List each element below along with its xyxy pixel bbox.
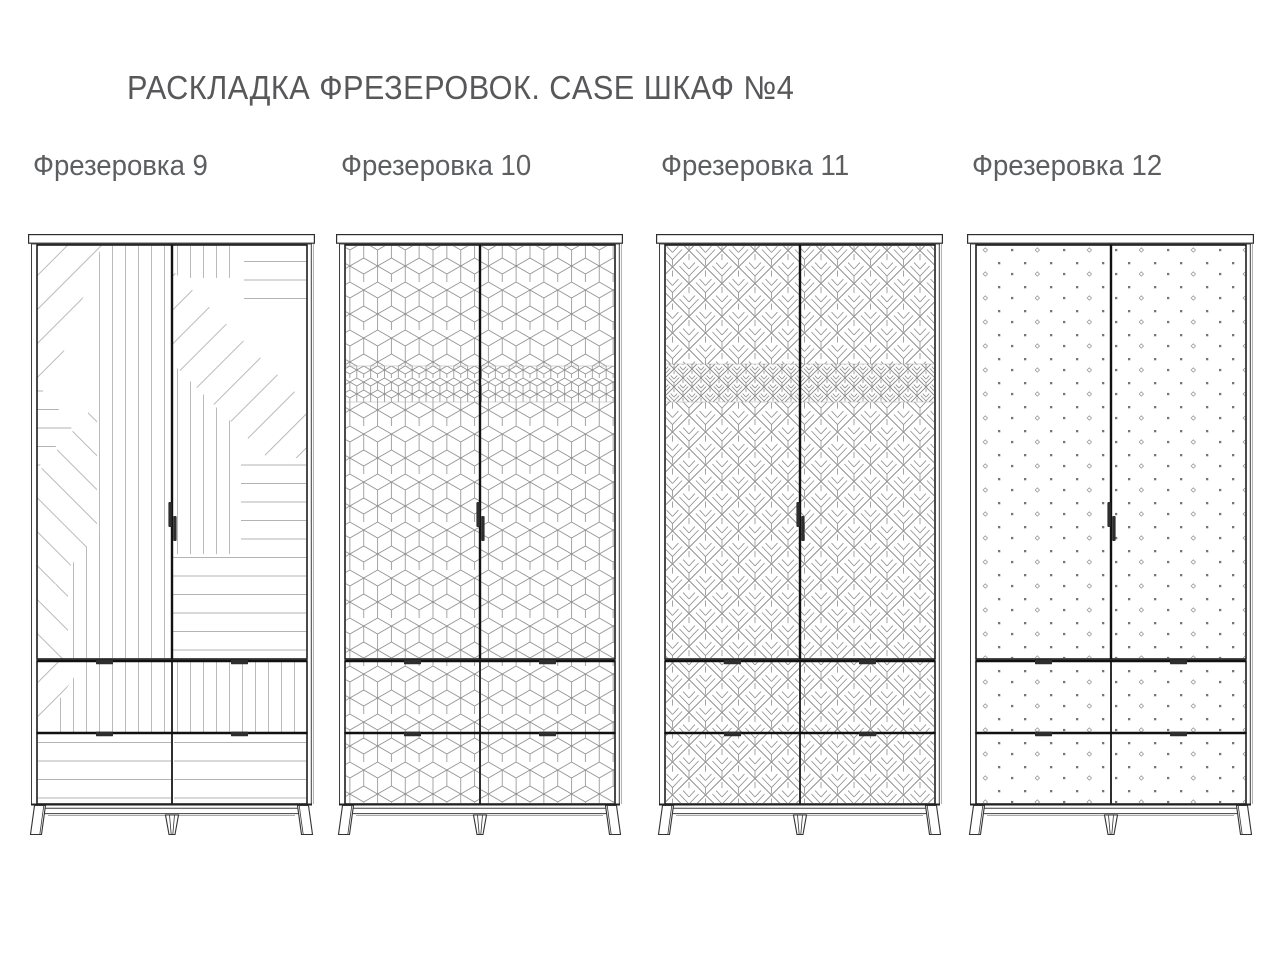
wardrobe-svg <box>967 234 1254 836</box>
wardrobe-drawing <box>967 234 1254 836</box>
top-cap <box>29 235 315 245</box>
center-leg <box>1105 815 1118 835</box>
wardrobe-block-3: Фрезеровка 11 <box>656 150 948 860</box>
wardrobe-drawing <box>656 234 943 836</box>
wardrobe-label: Фрезеровка 12 <box>972 150 1162 183</box>
wardrobe-block-1: Фрезеровка 9 <box>28 150 320 860</box>
top-cap <box>657 235 943 245</box>
wardrobe-drawing <box>28 234 315 836</box>
wardrobe-svg <box>336 234 623 836</box>
wardrobe-label: Фрезеровка 11 <box>661 150 849 183</box>
wardrobe-drawing <box>336 234 623 836</box>
top-cap <box>968 235 1254 245</box>
right-leg <box>926 806 941 835</box>
drawing-sheet: РАСКЛАДКА ФРЕЗЕРОВОК. CASE ШКАФ №4 Фрезе… <box>0 0 1281 960</box>
wardrobe-svg <box>28 234 315 836</box>
left-leg <box>31 806 46 835</box>
top-cap <box>337 235 623 245</box>
right-leg <box>298 806 313 835</box>
center-leg <box>794 815 807 835</box>
wardrobe-label: Фрезеровка 10 <box>341 150 531 183</box>
wardrobe-block-2: Фрезеровка 10 <box>336 150 628 860</box>
page-title: РАСКЛАДКА ФРЕЗЕРОВОК. CASE ШКАФ №4 <box>127 69 794 107</box>
left-leg <box>970 806 985 835</box>
wardrobe-block-4: Фрезеровка 12 <box>967 150 1259 860</box>
wardrobe-label: Фрезеровка 9 <box>33 150 208 183</box>
right-leg <box>606 806 621 835</box>
left-leg <box>339 806 354 835</box>
wardrobe-svg <box>656 234 943 836</box>
center-leg <box>166 815 179 835</box>
right-leg <box>1237 806 1252 835</box>
center-leg <box>474 815 487 835</box>
left-leg <box>659 806 674 835</box>
